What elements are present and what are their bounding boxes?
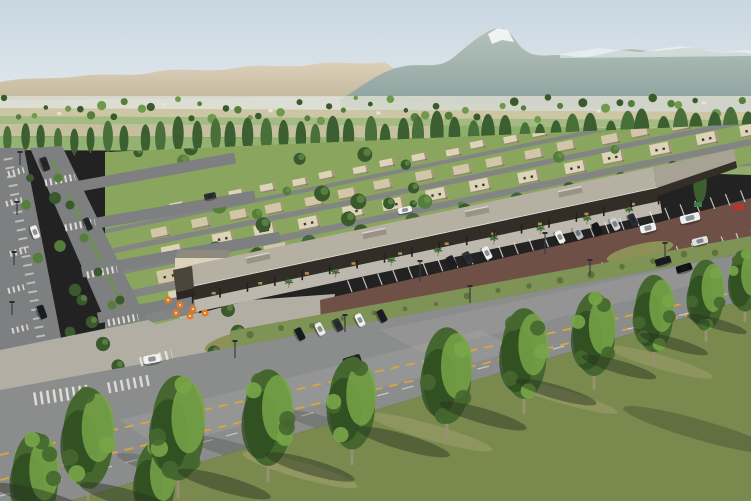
median-shrub xyxy=(526,283,532,289)
distant-tree xyxy=(65,106,71,112)
distant-tree xyxy=(387,95,395,103)
distant-tree xyxy=(500,103,506,109)
storefront-light xyxy=(258,282,262,285)
canopy-column xyxy=(548,218,550,228)
yard-tree-highlight xyxy=(558,152,564,158)
median-shrub xyxy=(278,325,284,331)
canopy-column xyxy=(301,271,303,281)
tree-canopy-lump xyxy=(633,316,646,329)
umbrella-top xyxy=(175,312,177,314)
tree-canopy-lump xyxy=(25,432,40,447)
stall-stripe xyxy=(665,208,670,220)
distant-tree xyxy=(628,100,635,107)
distant-tree xyxy=(1,95,7,101)
yard-tree-highlight xyxy=(298,154,304,160)
tree-canopy-lump xyxy=(149,428,167,446)
tree-canopy-lump xyxy=(46,471,61,486)
canopy-column xyxy=(247,282,249,292)
verge-tree xyxy=(69,284,81,296)
canopy-column xyxy=(521,224,523,234)
poplar-tree xyxy=(103,121,113,152)
canopy-column xyxy=(576,212,578,222)
yard-tree-highlight xyxy=(256,210,261,215)
canopy-column xyxy=(603,207,605,217)
tree-canopy-lump xyxy=(741,249,751,259)
distant-tree xyxy=(326,103,332,109)
distant-tree xyxy=(276,108,285,117)
yard-tree-highlight xyxy=(614,146,619,151)
poplar-tree xyxy=(211,118,221,150)
distant-tree xyxy=(121,98,128,105)
median-shrub xyxy=(464,293,471,300)
poplar-tree xyxy=(70,128,78,154)
umbrella-top xyxy=(179,304,181,306)
canopy-column xyxy=(466,236,468,246)
stall-stripe xyxy=(378,274,383,286)
tree-canopy-lump xyxy=(279,419,295,435)
storefront-light xyxy=(445,242,449,245)
stall-stripe xyxy=(438,260,443,272)
aerial-render xyxy=(0,0,751,501)
house-window xyxy=(355,210,358,213)
house-window xyxy=(482,183,485,186)
plaza-tree-highlight xyxy=(81,295,87,301)
stall-stripe xyxy=(680,204,685,216)
light-head xyxy=(588,259,593,261)
light-head xyxy=(12,251,17,253)
tree-canopy-lump xyxy=(535,344,550,359)
yard-tree-highlight xyxy=(182,156,188,162)
distant-house xyxy=(376,111,380,114)
tree-canopy-lump xyxy=(162,461,180,479)
distant-tree xyxy=(601,104,610,113)
distant-tree xyxy=(692,98,698,104)
distant-tree xyxy=(510,97,519,106)
median-tree xyxy=(108,301,117,310)
strip-end-feature xyxy=(173,266,194,292)
distant-tree xyxy=(255,113,262,120)
light-head xyxy=(18,151,23,153)
light-head xyxy=(10,301,15,303)
house-window xyxy=(304,223,307,226)
yard-tree-highlight xyxy=(363,149,370,156)
distant-tree xyxy=(545,94,552,101)
distant-tree xyxy=(297,99,303,105)
tree-canopy-lump xyxy=(99,436,116,453)
median-shrub xyxy=(681,251,688,258)
tree-canopy-lump xyxy=(174,376,192,394)
distant-house xyxy=(702,102,706,105)
house-window xyxy=(709,137,712,140)
distant-tree xyxy=(421,111,429,119)
verge-tree xyxy=(26,174,34,182)
distant-tree xyxy=(188,115,194,121)
canopy-column xyxy=(356,259,358,269)
distant-tree xyxy=(667,100,674,107)
tree-canopy-lump xyxy=(505,316,520,331)
stall-stripe xyxy=(514,242,519,254)
poplar-tree xyxy=(119,125,128,153)
yard-tree-highlight xyxy=(388,199,394,205)
distant-tree xyxy=(674,101,682,109)
house-window xyxy=(475,185,478,188)
median-shrub xyxy=(587,271,594,278)
tree-canopy-lump xyxy=(42,447,57,462)
light-head xyxy=(663,242,668,244)
distant-tree xyxy=(578,98,587,107)
stall-stripe xyxy=(363,277,368,289)
yard-tree-highlight xyxy=(405,161,410,166)
verge-tree xyxy=(115,295,124,304)
median-shrub xyxy=(246,331,253,338)
distant-tree xyxy=(32,113,38,119)
distant-tree xyxy=(354,96,358,100)
storefront-light xyxy=(305,272,309,275)
tree-canopy-lump xyxy=(530,320,545,335)
tree-canopy-lump xyxy=(454,342,470,358)
distant-tree xyxy=(87,111,95,119)
poplar-tree xyxy=(192,121,202,152)
distant-tree xyxy=(16,114,21,119)
plaza-tree-highlight xyxy=(117,361,123,367)
house-window xyxy=(311,221,314,224)
verge-tree xyxy=(54,240,66,252)
house-window xyxy=(615,155,618,158)
yard-tree-highlight xyxy=(347,213,354,220)
distant-tree xyxy=(175,96,181,102)
canopy-column xyxy=(329,265,331,275)
house-window xyxy=(570,167,573,170)
stall-stripe xyxy=(408,267,413,279)
stall-stripe xyxy=(423,263,428,275)
median-tree xyxy=(54,174,63,183)
tree-canopy-lump xyxy=(503,371,518,386)
median-tree xyxy=(94,268,103,277)
light-head xyxy=(543,232,548,234)
stall-stripe xyxy=(499,246,504,258)
distant-tree xyxy=(197,101,202,106)
median-tree xyxy=(80,234,89,243)
distant-tree xyxy=(110,113,117,120)
house-window xyxy=(431,194,434,197)
distant-tree xyxy=(739,97,746,104)
distant-tree xyxy=(223,105,230,112)
distant-tree xyxy=(317,117,325,125)
canopy-column xyxy=(219,288,221,298)
tree-canopy-lump xyxy=(663,310,676,323)
distant-house xyxy=(269,109,273,112)
distant-tree xyxy=(648,94,657,103)
distant-tree xyxy=(147,103,155,111)
median-tree xyxy=(66,201,75,210)
house-window xyxy=(218,238,221,241)
umbrella-top xyxy=(189,315,191,317)
house-window xyxy=(523,177,526,180)
storefront-light xyxy=(212,292,216,295)
tree-canopy-lump xyxy=(714,297,726,309)
poplar-tree xyxy=(172,116,183,151)
yard-tree-highlight xyxy=(286,188,290,192)
canopy-column xyxy=(274,276,276,286)
tree-canopy-highlight xyxy=(171,382,205,453)
canopy-column xyxy=(658,195,660,205)
umbrella-top xyxy=(204,312,206,314)
distant-tree xyxy=(521,105,526,110)
tree-canopy-lump xyxy=(571,315,585,329)
distant-tree xyxy=(234,106,242,114)
tree-canopy-lump xyxy=(710,267,722,279)
red-monument-sign xyxy=(733,204,744,210)
tree-canopy-lump xyxy=(326,394,341,409)
poplar-tree xyxy=(21,123,30,150)
median-shrub xyxy=(495,288,500,293)
tree-canopy-lump xyxy=(333,427,348,442)
distant-tree xyxy=(433,103,440,110)
distant-house xyxy=(57,112,61,115)
verge-tree xyxy=(49,192,61,204)
yard-tree-highlight xyxy=(424,196,431,203)
verge-tree xyxy=(33,253,44,264)
poplar-tree xyxy=(36,125,44,151)
yard-tree-highlight xyxy=(262,219,269,226)
distant-tree xyxy=(138,105,146,113)
plaza-tree-highlight xyxy=(227,305,233,311)
distant-house xyxy=(597,110,601,113)
umbrella-top xyxy=(192,308,194,310)
house-window xyxy=(225,237,228,240)
poplar-tree xyxy=(155,121,166,154)
distant-tree xyxy=(473,113,480,120)
yard-tree-highlight xyxy=(320,187,328,195)
distant-tree xyxy=(534,116,541,123)
median-shrub xyxy=(434,302,438,306)
verge-tree xyxy=(21,200,31,210)
house-window xyxy=(745,130,748,133)
plaza-tree-highlight xyxy=(91,317,97,323)
umbrella-top xyxy=(167,299,169,301)
tree-canopy-lump xyxy=(686,296,698,308)
yard-tree-highlight xyxy=(413,201,417,205)
distant-tree xyxy=(404,108,409,113)
median-shrub xyxy=(403,306,408,311)
house-window xyxy=(608,157,611,160)
storefront-light xyxy=(538,223,542,226)
median-shrub xyxy=(557,277,564,284)
poplar-tree xyxy=(141,124,150,153)
house-window xyxy=(438,193,441,196)
stall-stripe xyxy=(710,197,715,209)
canopy-column xyxy=(411,247,413,257)
distant-tree xyxy=(77,106,84,113)
tree-canopy-lump xyxy=(353,361,368,376)
house-window xyxy=(702,138,705,141)
tree-canopy-lump xyxy=(732,255,742,265)
tree-canopy-lump xyxy=(420,374,436,390)
tree-canopy-lump xyxy=(728,266,738,276)
plaza-tree-highlight xyxy=(102,339,108,345)
tree-canopy-lump xyxy=(588,291,602,305)
tree-canopy-lump xyxy=(62,449,79,466)
house-window xyxy=(530,175,533,178)
distant-tree xyxy=(341,108,346,113)
house-window xyxy=(395,203,398,206)
distant-tree xyxy=(97,101,106,110)
poplar-tree xyxy=(87,127,95,151)
tree-canopy-lump xyxy=(183,453,201,471)
rendered-scene xyxy=(0,0,751,501)
distant-tree xyxy=(462,107,469,114)
light-head xyxy=(343,314,348,316)
distant-tree xyxy=(445,112,453,120)
median-shrub xyxy=(619,264,625,270)
tree-canopy-lump xyxy=(68,465,85,482)
distant-tree xyxy=(368,102,373,107)
distant-tree xyxy=(304,115,310,121)
house-window xyxy=(655,149,658,152)
house-window xyxy=(163,276,166,279)
tree-canopy-lump xyxy=(246,382,262,398)
storefront-light xyxy=(584,213,588,216)
storefront-light xyxy=(351,262,355,265)
storefront-light xyxy=(398,252,402,255)
light-head xyxy=(233,340,238,342)
stall-stripe xyxy=(393,270,398,282)
tree-canopy-lump xyxy=(78,387,95,404)
distant-tree xyxy=(557,103,563,109)
light-head xyxy=(468,285,473,287)
tree-canopy-lump xyxy=(662,295,675,308)
canopy-column xyxy=(192,294,194,304)
distant-tree xyxy=(616,99,623,106)
distant-tree xyxy=(44,105,49,110)
house-window xyxy=(662,147,665,150)
stall-stripe xyxy=(725,194,730,206)
yard-tree-highlight xyxy=(412,184,418,190)
light-head xyxy=(418,260,423,262)
stall-stripe xyxy=(348,281,353,293)
house-window xyxy=(577,166,580,169)
yard-tree-highlight xyxy=(357,195,365,203)
green-sign xyxy=(694,202,702,207)
median-shrub xyxy=(712,250,719,257)
canopy-column xyxy=(384,253,386,263)
distant-house xyxy=(161,103,165,106)
light-head xyxy=(15,201,20,203)
